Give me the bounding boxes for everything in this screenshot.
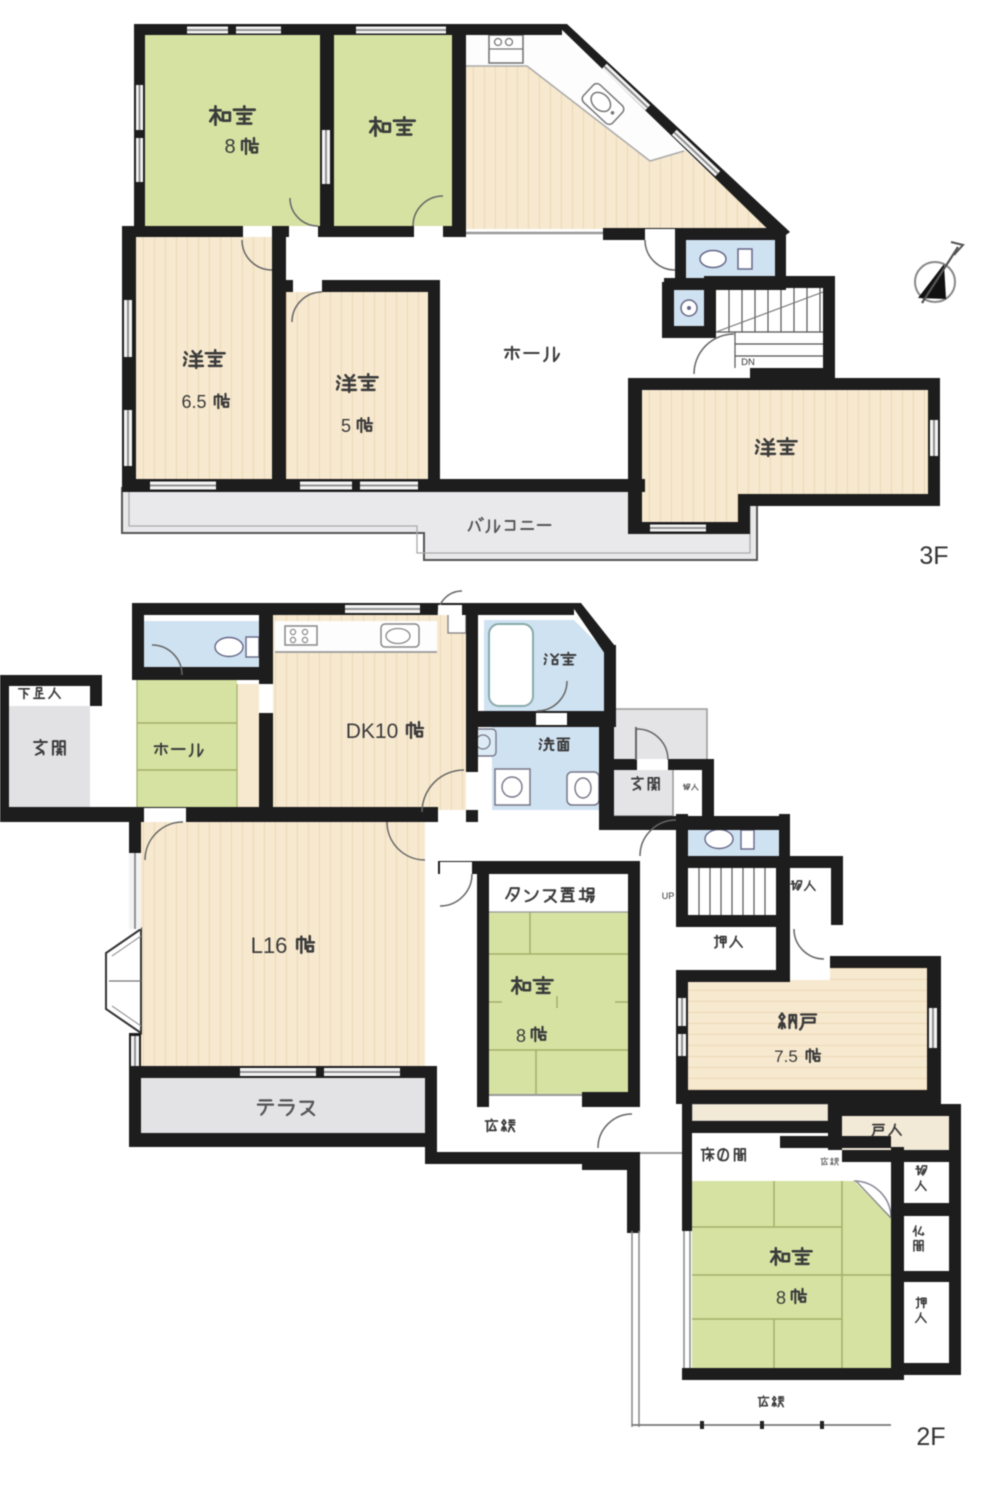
svg-text:L16: L16 <box>251 933 288 958</box>
svg-text:8: 8 <box>516 1026 526 1046</box>
svg-text:8: 8 <box>224 136 235 158</box>
svg-text:2F: 2F <box>916 1423 945 1451</box>
svg-text:DK10: DK10 <box>346 720 399 743</box>
svg-text:7.5: 7.5 <box>774 1047 798 1066</box>
svg-text:3F: 3F <box>919 542 948 570</box>
svg-text:8: 8 <box>776 1288 786 1308</box>
svg-text:6.5: 6.5 <box>181 392 206 412</box>
svg-text:UP: UP <box>662 891 675 901</box>
svg-text:DN: DN <box>741 357 755 368</box>
svg-text:5: 5 <box>341 416 351 436</box>
